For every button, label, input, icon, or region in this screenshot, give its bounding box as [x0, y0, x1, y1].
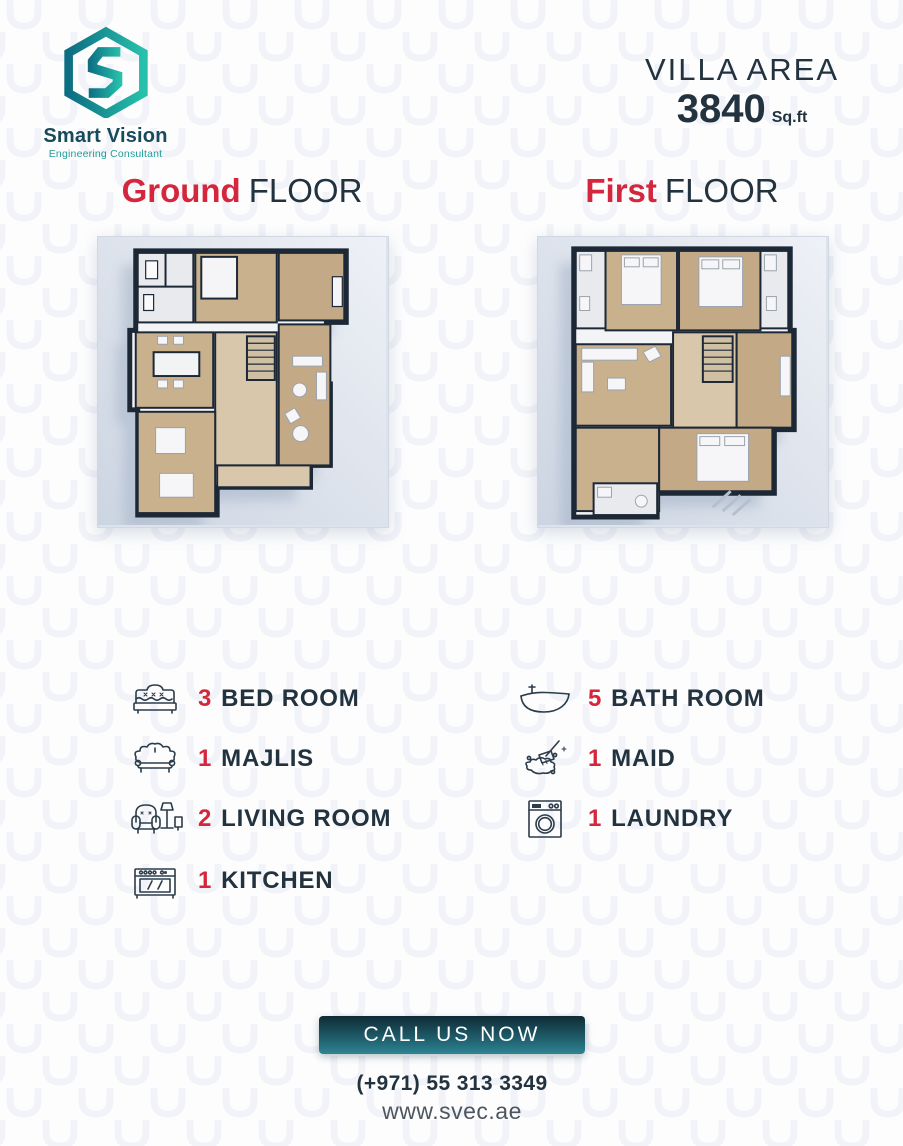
villa-area-unit: Sq.ft — [772, 109, 808, 126]
feature-label: 1LAUNDRY — [588, 805, 733, 833]
stove-icon — [124, 862, 186, 900]
feature-bath-room: 5BATH ROOM — [514, 669, 765, 729]
villa-area-value: 3840Sq.ft — [612, 88, 872, 130]
bathtub-icon — [514, 683, 576, 715]
sofa-icon — [124, 742, 186, 776]
washing-machine-icon — [514, 798, 576, 840]
ground-floor-title-highlight: Ground — [122, 172, 241, 209]
feature-maid: 1MAID — [514, 729, 676, 789]
feature-label: 5BATH ROOM — [588, 685, 765, 713]
ground-floor-title: GroundFLOOR — [97, 172, 387, 210]
first-floor-title: FirstFLOOR — [537, 172, 827, 210]
feature-label: 1MAID — [588, 745, 676, 773]
phone-number[interactable]: (+971) 55 313 3349 — [252, 1072, 652, 1096]
feature-label: 1MAJLIS — [198, 745, 314, 773]
smart-vision-logo-icon — [58, 26, 154, 118]
first-floor-title-highlight: First — [585, 172, 657, 209]
feature-label: 3BED ROOM — [198, 685, 360, 713]
first-floor-plan-image — [537, 236, 829, 528]
villa-area-label: VILLA AREA — [612, 52, 872, 88]
cleaning-brush-icon — [514, 739, 576, 779]
brand-logo-block: Smart Vision Engineering Consultant — [38, 26, 173, 160]
bed-icon — [124, 682, 186, 716]
brand-name: Smart Vision — [38, 125, 173, 148]
feature-kitchen: 1KITCHEN — [124, 851, 333, 911]
first-floor-title-rest: FLOOR — [665, 172, 779, 209]
ground-floor-title-rest: FLOOR — [249, 172, 363, 209]
call-us-now-button[interactable]: CALL US NOW — [319, 1016, 585, 1054]
feature-label: 1KITCHEN — [198, 867, 333, 895]
villa-area-block: VILLA AREA 3840Sq.ft — [612, 52, 872, 130]
brand-tagline: Engineering Consultant — [38, 148, 173, 160]
ground-floor-plan-image — [97, 236, 389, 528]
armchair-lamp-icon-row feature-living-room: 2LIVING ROOM — [124, 789, 391, 849]
feature-label: 2LIVING ROOM — [198, 805, 391, 833]
website-link[interactable]: www.svec.ae — [252, 1098, 652, 1125]
feature-laundry: 1LAUNDRY — [514, 789, 733, 849]
feature-majlis: 1MAJLIS — [124, 729, 314, 789]
feature-bed-room: 3BED ROOM — [124, 669, 360, 729]
armchair-lamp-icon — [124, 800, 186, 838]
